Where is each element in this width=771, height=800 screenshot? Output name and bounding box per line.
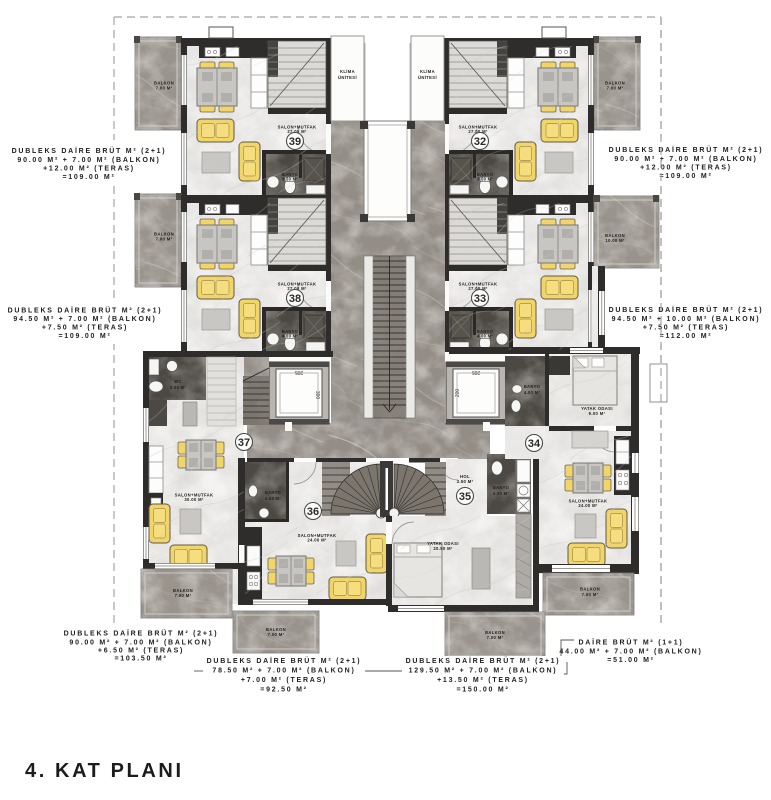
svg-text:33: 33 xyxy=(474,293,486,305)
svg-text:BALKON: BALKON xyxy=(580,587,600,592)
svg-text:=112.00 M²: =112.00 M² xyxy=(660,333,713,340)
svg-text:=92.50 M²: =92.50 M² xyxy=(260,687,307,694)
svg-text:205: 205 xyxy=(472,369,481,375)
svg-text:WC: WC xyxy=(174,379,181,384)
svg-text:24.00 M²: 24.00 M² xyxy=(307,538,327,543)
svg-text:+12.00 M² (TERAS): +12.00 M² (TERAS) xyxy=(640,165,732,172)
svg-text:KLİMA: KLİMA xyxy=(340,69,355,74)
svg-text:37: 37 xyxy=(238,437,250,449)
svg-text:7.00 M²: 7.00 M² xyxy=(156,86,173,91)
svg-text:7.00 M²: 7.00 M² xyxy=(582,592,599,597)
svg-text:34: 34 xyxy=(528,438,541,450)
svg-text:7.00 M²: 7.00 M² xyxy=(268,632,285,637)
svg-text:=109.00 M²: =109.00 M² xyxy=(659,173,712,180)
svg-text:DUBLEKS DAİRE BRÜT M² (2+1): DUBLEKS DAİRE BRÜT M² (2+1) xyxy=(609,145,764,154)
svg-text:+7.00 M² (TERAS): +7.00 M² (TERAS) xyxy=(241,677,327,684)
svg-text:DUBLEKS DAİRE BRÜT M² (2+1): DUBLEKS DAİRE BRÜT M² (2+1) xyxy=(406,656,561,665)
svg-text:4.00 M²: 4.00 M² xyxy=(282,334,298,339)
svg-text:4. KAT PLANI: 4. KAT PLANI xyxy=(25,760,184,782)
svg-text:7.00 M²: 7.00 M² xyxy=(607,86,624,91)
svg-text:78.50 M² + 7.00 M² (BALKON): 78.50 M² + 7.00 M² (BALKON) xyxy=(212,668,355,675)
svg-text:BANYO: BANYO xyxy=(265,490,282,495)
svg-text:129.50 M² + 7.00 M² (BALKON): 129.50 M² + 7.00 M² (BALKON) xyxy=(409,668,558,675)
svg-text:4.00 M²: 4.00 M² xyxy=(265,496,281,501)
svg-text:10.00 M²: 10.00 M² xyxy=(605,238,625,243)
svg-text:39: 39 xyxy=(289,136,301,148)
svg-text:DUBLEKS DAİRE BRÜT M² (2+1): DUBLEKS DAİRE BRÜT M² (2+1) xyxy=(64,629,219,638)
svg-text:+13.50 M² (TERAS): +13.50 M² (TERAS) xyxy=(437,677,529,684)
svg-text:=103.50 M²: =103.50 M² xyxy=(114,656,167,663)
svg-text:=109.00 M²: =109.00 M² xyxy=(62,174,115,181)
svg-text:30.00 M²: 30.00 M² xyxy=(184,497,204,502)
svg-text:3.50 M²: 3.50 M² xyxy=(457,479,474,484)
svg-text:20.50 M²: 20.50 M² xyxy=(433,546,453,551)
svg-text:DUBLEKS DAİRE BRÜT M² (2+1): DUBLEKS DAİRE BRÜT M² (2+1) xyxy=(12,146,167,155)
svg-text:205: 205 xyxy=(295,369,304,375)
svg-text:+7.50 M² (TERAS): +7.50 M² (TERAS) xyxy=(42,325,128,332)
svg-text:ÜNİTESİ: ÜNİTESİ xyxy=(418,75,437,80)
svg-text:4.00 M²: 4.00 M² xyxy=(524,390,540,395)
svg-text:38: 38 xyxy=(289,293,301,305)
svg-text:9.00 M²: 9.00 M² xyxy=(589,411,606,416)
svg-text:90.00 M² + 7.00 M² (BALKON): 90.00 M² + 7.00 M² (BALKON) xyxy=(614,156,757,163)
svg-text:90.00 M² + 7.00 M² (BALKON): 90.00 M² + 7.00 M² (BALKON) xyxy=(17,157,160,164)
svg-text:4.00 M²: 4.00 M² xyxy=(477,334,493,339)
svg-text:90.00 M² + 7.00 M² (BALKON): 90.00 M² + 7.00 M² (BALKON) xyxy=(69,640,212,647)
svg-text:3.50 M²: 3.50 M² xyxy=(282,177,298,182)
svg-text:32: 32 xyxy=(474,136,486,148)
svg-text:3.00 M²: 3.00 M² xyxy=(170,385,186,390)
svg-text:7.00 M²: 7.00 M² xyxy=(175,593,192,598)
svg-text:3.50 M²: 3.50 M² xyxy=(477,177,493,182)
svg-text:300: 300 xyxy=(314,391,320,400)
svg-text:36: 36 xyxy=(307,506,319,518)
svg-text:BANYO: BANYO xyxy=(493,485,510,490)
svg-text:+7.50 M² (TERAS): +7.50 M² (TERAS) xyxy=(643,325,729,332)
svg-text:94.50 M² + 10.00 M² (BALKON): 94.50 M² + 10.00 M² (BALKON) xyxy=(612,316,761,323)
svg-text:=109.00 M²: =109.00 M² xyxy=(58,333,111,340)
svg-text:7.00 M²: 7.00 M² xyxy=(156,237,173,242)
svg-text:DAİRE BRÜT M² (1+1): DAİRE BRÜT M² (1+1) xyxy=(578,638,683,647)
svg-text:24.00 M²: 24.00 M² xyxy=(578,503,598,508)
svg-text:=150.00 M²: =150.00 M² xyxy=(456,687,509,694)
svg-text:94.50 M² + 7.00 M² (BALKON): 94.50 M² + 7.00 M² (BALKON) xyxy=(13,316,156,323)
svg-text:+12.00 M² (TERAS): +12.00 M² (TERAS) xyxy=(43,166,135,173)
svg-text:44.00 M² + 7.00 M² (BALKON): 44.00 M² + 7.00 M² (BALKON) xyxy=(559,649,702,656)
svg-text:ÜNİTESİ: ÜNİTESİ xyxy=(338,75,357,80)
svg-text:BANYO: BANYO xyxy=(524,384,541,389)
svg-text:7.00 M²: 7.00 M² xyxy=(487,635,504,640)
svg-text:DUBLEKS DAİRE BRÜT M² (2+1): DUBLEKS DAİRE BRÜT M² (2+1) xyxy=(8,306,163,315)
svg-text:KLİMA: KLİMA xyxy=(420,69,435,74)
svg-text:200: 200 xyxy=(455,389,461,398)
svg-text:=51.00 M²: =51.00 M² xyxy=(607,657,654,664)
svg-text:4.00 M²: 4.00 M² xyxy=(493,491,509,496)
svg-text:+6.50 M² (TERAS): +6.50 M² (TERAS) xyxy=(98,648,184,655)
svg-text:DUBLEKS DAİRE BRÜT M² (2+1): DUBLEKS DAİRE BRÜT M² (2+1) xyxy=(207,656,362,665)
svg-text:35: 35 xyxy=(459,491,471,503)
svg-text:DUBLEKS DAİRE BRÜT M² (2+1): DUBLEKS DAİRE BRÜT M² (2+1) xyxy=(609,305,764,314)
